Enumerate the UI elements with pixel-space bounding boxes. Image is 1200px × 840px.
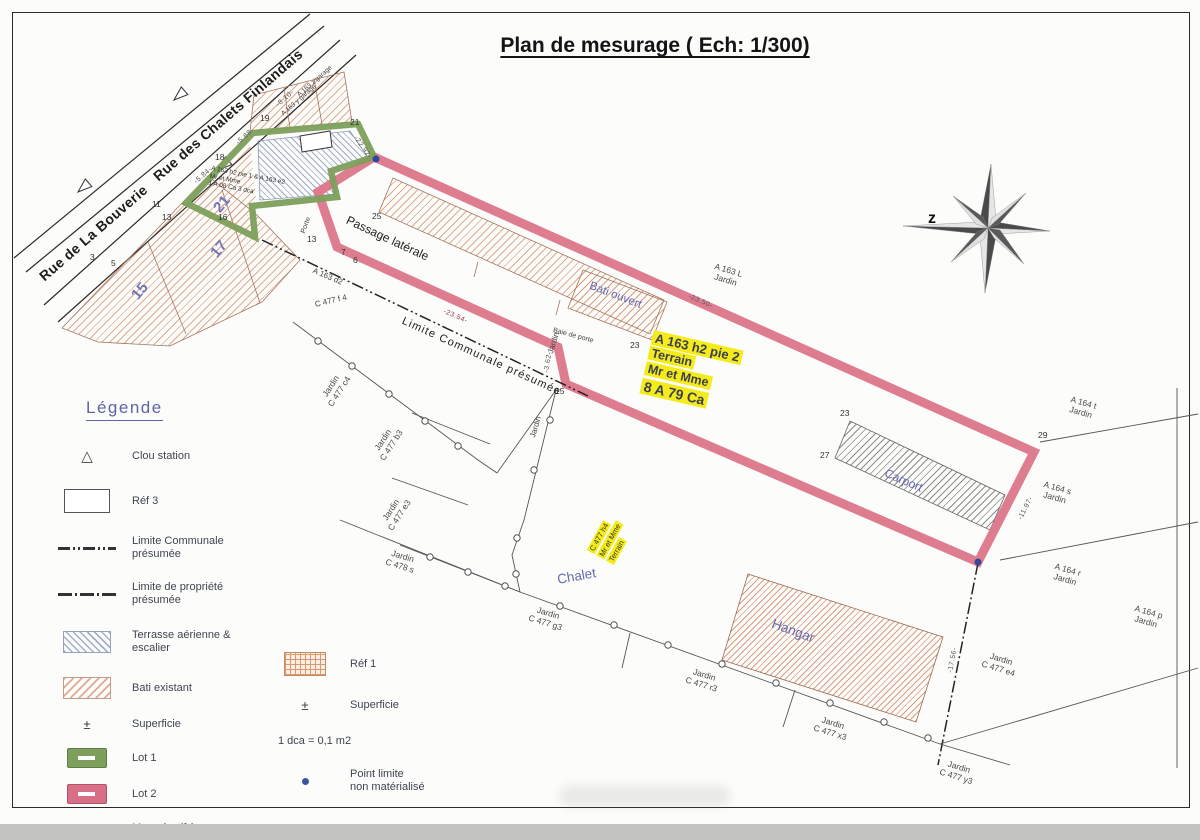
legend-item-limite-communale: Limite Communale présumée: [58, 535, 304, 561]
legend-item-ref3: Réf 3: [58, 489, 304, 513]
legend: Légende △ Clou station Réf 3 Limite Comm…: [58, 398, 304, 840]
legend-item-limite-propriete: Limite de propriété présumée: [58, 581, 304, 607]
blue-hatch-icon: [63, 631, 111, 653]
blue-dot-icon: [302, 778, 309, 785]
point-7: 7: [341, 247, 346, 257]
plus-minus-icon: ±: [83, 717, 90, 732]
legend-label: Limite Communale: [132, 535, 224, 548]
point-11: 11: [152, 199, 161, 209]
legend-label: 1 dca = 0,1 m2: [278, 735, 351, 748]
legend-label: non matérialisé: [350, 781, 425, 794]
scan-edge-bar: [0, 824, 1200, 840]
legend-item-dca: 1 dca = 0,1 m2: [276, 735, 496, 748]
legend-item-lot2: Lot 2: [58, 784, 304, 804]
point-23: 23: [630, 340, 639, 350]
dash-dot-line-icon: [58, 547, 116, 550]
point-23-carport: 23: [840, 408, 849, 418]
point-19: 19: [260, 113, 269, 123]
dash-dot-line-icon: [58, 593, 116, 596]
rectangle-icon: [64, 489, 110, 513]
legend-label: Point limite: [350, 768, 425, 781]
point-6: 6: [353, 255, 358, 265]
legend-label: Superficie: [350, 699, 399, 712]
plan-title: Plan de mesurage ( Ech: 1/300): [455, 34, 855, 58]
legend-label: Limite de propriété: [132, 581, 223, 594]
compass-rose-icon: [903, 164, 1050, 293]
lot1-swatch-icon: [67, 748, 107, 768]
legend-item-superficie: ± Superficie: [58, 717, 304, 732]
legend-label: Terrasse aérienne &: [132, 629, 230, 642]
legend-label: Réf 1: [350, 658, 376, 671]
point-25: 25: [372, 211, 381, 221]
legend-label: présumée: [132, 594, 223, 607]
legend-label: Bati existant: [132, 682, 192, 695]
legend-item-clou-station: △ Clou station: [58, 447, 304, 465]
legend-item-bati-existant: Bati existant: [58, 677, 304, 699]
point-29: 29: [1038, 430, 1047, 440]
lot2-swatch-icon: [67, 784, 107, 804]
grid-hatch-icon: [284, 652, 326, 676]
legend-item-superficie-2: ± Superficie: [276, 698, 496, 713]
plus-minus-icon: ±: [301, 698, 308, 713]
pink-hatch-icon: [63, 677, 111, 699]
legend-heading: Légende: [86, 398, 163, 421]
triangle-icon: △: [81, 447, 93, 465]
scan-artifact: [560, 786, 730, 806]
compass-north-label: z: [928, 210, 936, 228]
point-3: 3: [90, 252, 95, 262]
legend-label: Lot 1: [132, 752, 156, 765]
legend-label: Réf 3: [132, 495, 158, 508]
legend-item-point-limite: Point limite non matérialisé: [276, 768, 496, 794]
point-13b: 13: [307, 234, 316, 244]
legend-label: Lot 2: [132, 788, 156, 801]
ref3-marker: [300, 131, 332, 152]
point-5: 5: [111, 258, 116, 268]
legend-label: escalier: [132, 642, 230, 655]
scanned-survey-plan: Plan de mesurage ( Ech: 1/300) z Rue de …: [0, 0, 1200, 840]
legend-label: Superficie: [132, 718, 181, 731]
legend-column-2: Réf 1 ± Superficie 1 dca = 0,1 m2 Point …: [276, 652, 496, 794]
street-lines: [14, 14, 356, 322]
legend-label: présumée: [132, 548, 224, 561]
legend-item-terrasse: Terrasse aérienne & escalier: [58, 629, 304, 655]
point-21: 21: [350, 117, 359, 127]
legend-item-ref1: Réf 1: [276, 652, 496, 676]
point-27: 27: [820, 450, 829, 460]
legend-item-lot1: Lot 1: [58, 748, 304, 768]
point-18: 18: [215, 152, 224, 162]
point-13: 13: [162, 212, 171, 222]
legend-label: Clou station: [132, 450, 190, 463]
point-16: 16: [218, 212, 227, 222]
